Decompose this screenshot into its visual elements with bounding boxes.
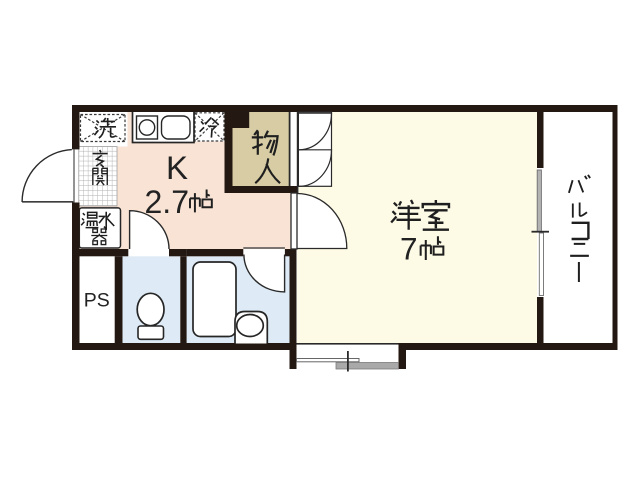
svg-text:7: 7	[400, 231, 418, 267]
svg-text:PS: PS	[84, 289, 110, 311]
svg-text:2.7: 2.7	[145, 184, 189, 220]
svg-text:K: K	[166, 150, 188, 186]
